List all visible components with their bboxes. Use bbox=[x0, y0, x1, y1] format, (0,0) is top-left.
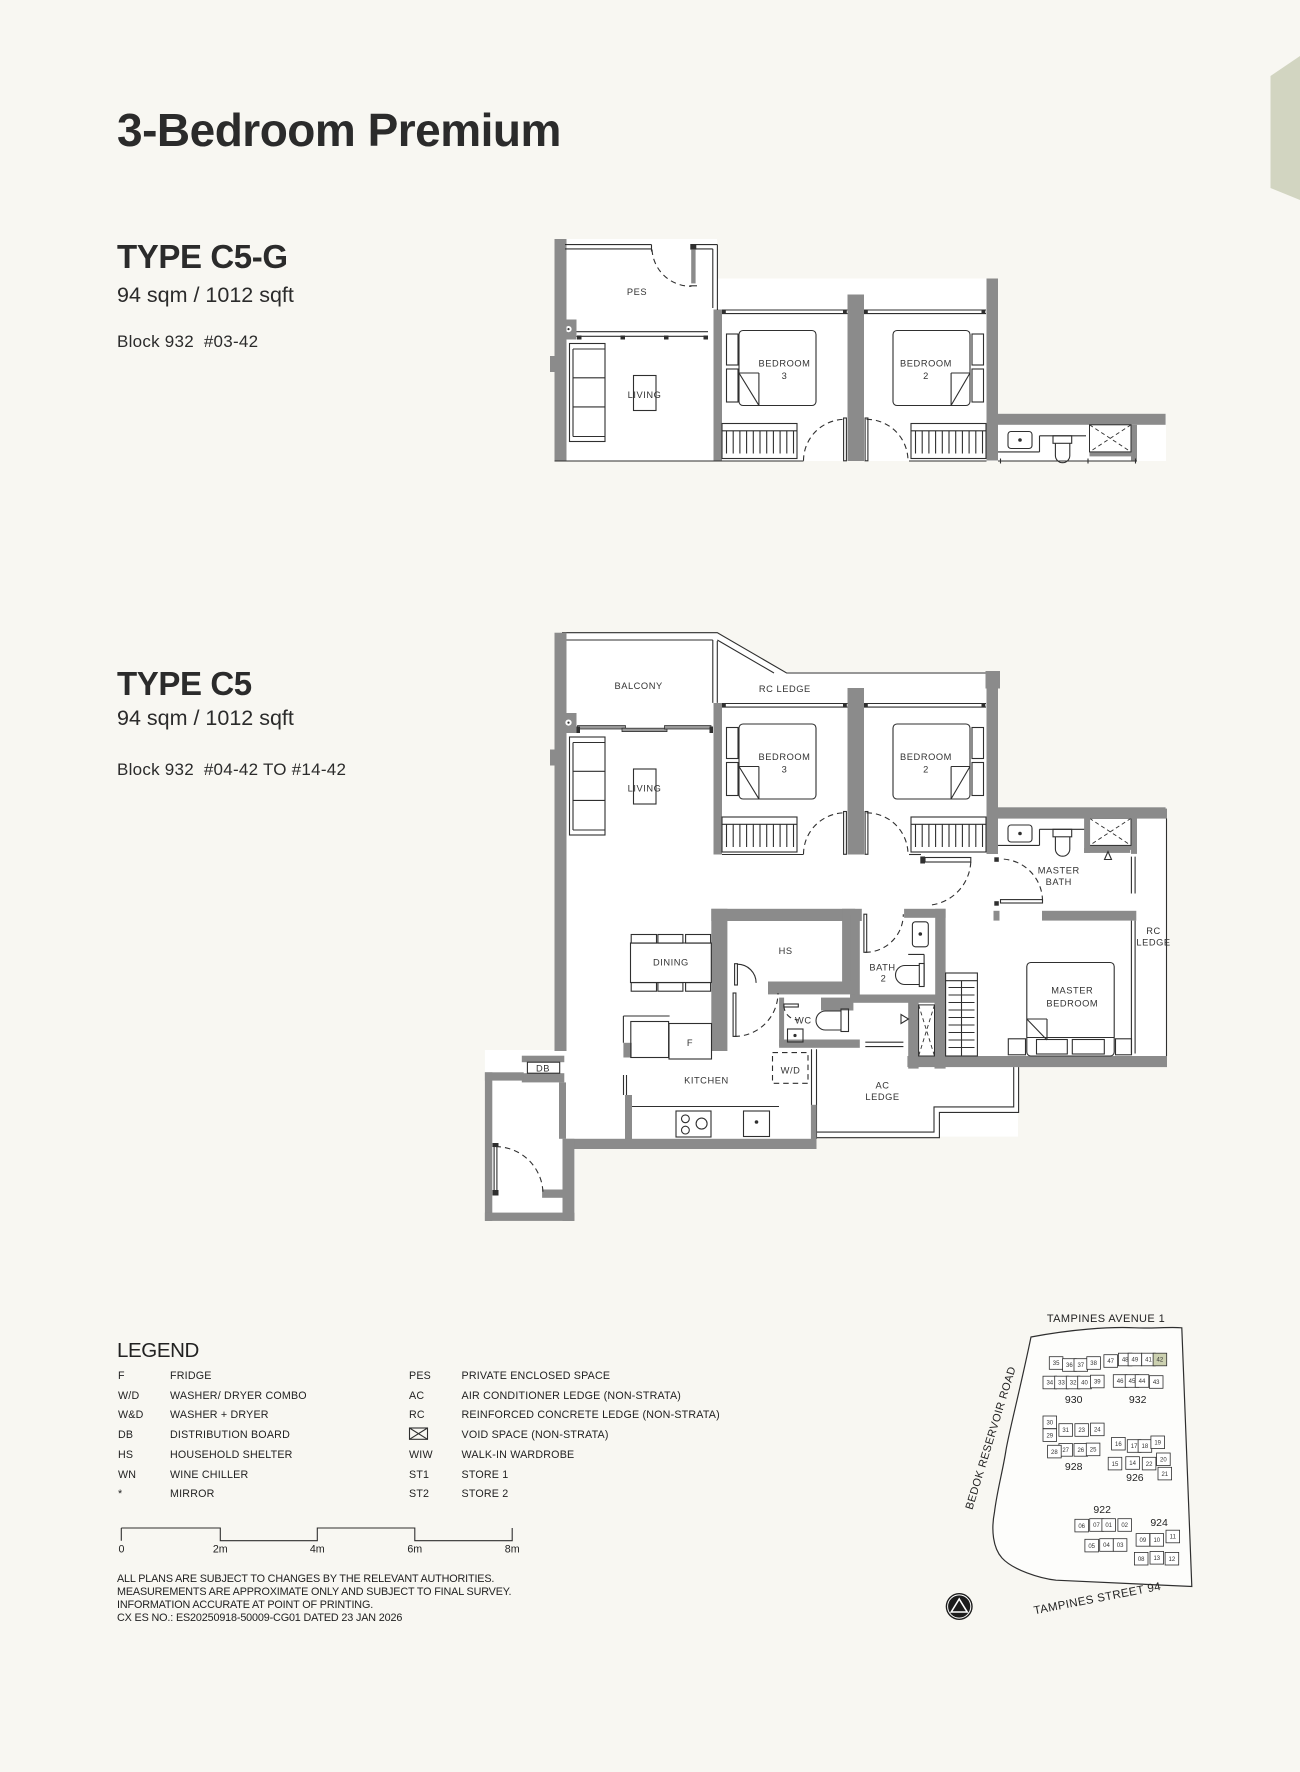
svg-text:07: 07 bbox=[1093, 1523, 1100, 1529]
svg-text:43: 43 bbox=[1153, 1380, 1160, 1386]
svg-text:W/D: W/D bbox=[781, 1065, 801, 1075]
svg-text:2: 2 bbox=[881, 974, 887, 984]
svg-text:37: 37 bbox=[1077, 1363, 1084, 1369]
svg-text:05: 05 bbox=[1088, 1544, 1095, 1550]
svg-text:31: 31 bbox=[1062, 1428, 1069, 1434]
svg-text:13: 13 bbox=[1153, 1556, 1160, 1562]
svg-text:30: 30 bbox=[1046, 1421, 1053, 1427]
svg-text:10: 10 bbox=[1153, 1538, 1160, 1544]
svg-text:41: 41 bbox=[1145, 1358, 1152, 1364]
svg-text:49: 49 bbox=[1132, 1358, 1139, 1364]
svg-text:21: 21 bbox=[1161, 1472, 1168, 1478]
svg-text:14: 14 bbox=[1129, 1461, 1136, 1467]
svg-text:32: 32 bbox=[1070, 1381, 1077, 1387]
svg-text:16: 16 bbox=[1115, 1442, 1122, 1448]
svg-text:HS: HS bbox=[779, 946, 793, 956]
svg-text:18: 18 bbox=[1142, 1444, 1149, 1450]
svg-text:BATH: BATH bbox=[869, 963, 895, 973]
svg-text:MASTER: MASTER bbox=[1038, 866, 1080, 876]
svg-text:03: 03 bbox=[1117, 1543, 1124, 1549]
svg-text:08: 08 bbox=[1138, 1557, 1145, 1563]
svg-text:TAMPINES STREET 94: TAMPINES STREET 94 bbox=[1033, 1581, 1163, 1618]
svg-text:RC: RC bbox=[1146, 926, 1161, 936]
svg-text:930: 930 bbox=[1065, 1394, 1083, 1406]
svg-text:932: 932 bbox=[1129, 1394, 1147, 1406]
svg-text:17: 17 bbox=[1131, 1444, 1138, 1450]
svg-text:922: 922 bbox=[1093, 1504, 1111, 1516]
svg-text:39: 39 bbox=[1094, 1380, 1101, 1386]
svg-text:04: 04 bbox=[1103, 1543, 1110, 1549]
svg-text:27: 27 bbox=[1062, 1448, 1069, 1454]
svg-text:MASTER: MASTER bbox=[1051, 986, 1093, 996]
svg-text:42: 42 bbox=[1157, 1358, 1164, 1364]
svg-text:01: 01 bbox=[1105, 1523, 1112, 1529]
svg-text:34: 34 bbox=[1046, 1381, 1053, 1387]
svg-text:29: 29 bbox=[1046, 1433, 1053, 1439]
svg-text:11: 11 bbox=[1170, 1535, 1177, 1541]
svg-text:RC LEDGE: RC LEDGE bbox=[759, 684, 811, 694]
svg-text:09: 09 bbox=[1140, 1538, 1147, 1544]
svg-text:46: 46 bbox=[1117, 1379, 1124, 1385]
svg-text:DINING: DINING bbox=[653, 958, 689, 968]
svg-text:AC: AC bbox=[875, 1081, 889, 1091]
svg-text:40: 40 bbox=[1081, 1381, 1088, 1387]
svg-text:BEDROOM: BEDROOM bbox=[1046, 999, 1098, 1009]
svg-text:24: 24 bbox=[1094, 1428, 1101, 1434]
svg-text:23: 23 bbox=[1078, 1428, 1085, 1434]
svg-text:924: 924 bbox=[1150, 1517, 1168, 1529]
svg-text:25: 25 bbox=[1090, 1448, 1097, 1454]
svg-text:928: 928 bbox=[1065, 1461, 1083, 1473]
svg-text:BALCONY: BALCONY bbox=[614, 681, 662, 691]
svg-text:LEDGE: LEDGE bbox=[865, 1092, 899, 1102]
svg-text:22: 22 bbox=[1146, 1462, 1153, 1468]
svg-text:20: 20 bbox=[1160, 1458, 1167, 1464]
svg-text:F: F bbox=[687, 1038, 693, 1048]
svg-text:02: 02 bbox=[1121, 1523, 1128, 1529]
svg-text:44: 44 bbox=[1139, 1379, 1146, 1385]
svg-text:26: 26 bbox=[1077, 1448, 1084, 1454]
svg-text:48: 48 bbox=[1122, 1358, 1129, 1364]
svg-text:19: 19 bbox=[1154, 1441, 1161, 1447]
svg-text:47: 47 bbox=[1107, 1359, 1114, 1365]
svg-text:06: 06 bbox=[1078, 1524, 1085, 1530]
svg-text:LEDGE: LEDGE bbox=[1136, 937, 1170, 947]
svg-text:45: 45 bbox=[1129, 1379, 1136, 1385]
svg-text:36: 36 bbox=[1066, 1363, 1073, 1369]
svg-text:15: 15 bbox=[1112, 1462, 1119, 1468]
svg-text:DB: DB bbox=[536, 1064, 550, 1074]
svg-text:35: 35 bbox=[1053, 1361, 1060, 1367]
svg-text:TAMPINES AVENUE 1: TAMPINES AVENUE 1 bbox=[1047, 1313, 1165, 1325]
svg-text:926: 926 bbox=[1126, 1472, 1144, 1484]
svg-text:38: 38 bbox=[1090, 1361, 1097, 1367]
svg-text:33: 33 bbox=[1058, 1381, 1065, 1387]
svg-text:28: 28 bbox=[1051, 1450, 1058, 1456]
svg-text:WC: WC bbox=[795, 1016, 812, 1026]
svg-text:KITCHEN: KITCHEN bbox=[684, 1076, 729, 1086]
svg-text:BATH: BATH bbox=[1046, 877, 1072, 887]
svg-text:12: 12 bbox=[1169, 1557, 1176, 1563]
